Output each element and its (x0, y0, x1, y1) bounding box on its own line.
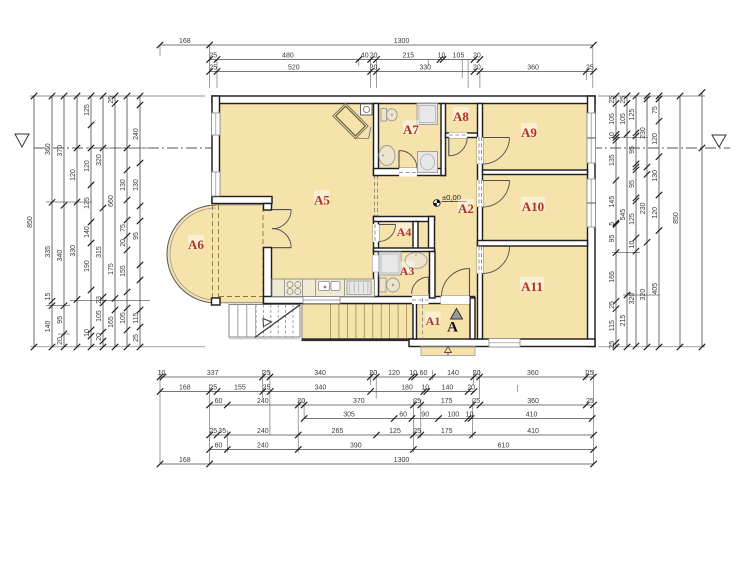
svg-text:25: 25 (263, 385, 271, 392)
svg-text:10: 10 (438, 53, 446, 60)
svg-text:135: 135 (609, 154, 616, 166)
svg-text:A11: A11 (521, 279, 543, 294)
svg-text:340: 340 (314, 370, 326, 377)
svg-text:105: 105 (453, 53, 465, 60)
svg-text:60: 60 (215, 398, 223, 405)
svg-text:660: 660 (108, 195, 115, 207)
svg-text:115: 115 (133, 312, 140, 323)
svg-text:165: 165 (609, 271, 616, 283)
svg-text:125: 125 (389, 428, 401, 435)
svg-text:20: 20 (370, 53, 378, 60)
svg-text:120: 120 (652, 133, 659, 145)
svg-text:125: 125 (629, 213, 636, 225)
svg-text:320: 320 (640, 289, 647, 301)
svg-text:155: 155 (120, 265, 127, 277)
svg-text:405: 405 (652, 283, 659, 295)
svg-text:95: 95 (609, 235, 616, 243)
svg-text:20: 20 (96, 333, 103, 341)
svg-text:25: 25 (209, 53, 217, 60)
svg-text:40: 40 (361, 53, 369, 60)
svg-text:25: 25 (609, 301, 616, 309)
svg-text:25: 25 (586, 65, 594, 72)
svg-text:20: 20 (120, 239, 127, 247)
svg-text:75: 75 (652, 106, 659, 114)
svg-text:410: 410 (527, 428, 539, 435)
svg-text:360: 360 (527, 65, 539, 72)
svg-text:168: 168 (179, 457, 191, 464)
svg-text:330: 330 (419, 65, 431, 72)
svg-text:140: 140 (84, 226, 91, 238)
svg-text:25: 25 (586, 370, 594, 377)
svg-text:60: 60 (215, 443, 223, 450)
svg-text:850: 850 (27, 216, 34, 228)
svg-text:5: 5 (609, 222, 616, 226)
svg-text:20: 20 (369, 370, 377, 377)
svg-text:95: 95 (133, 232, 140, 240)
svg-text:95: 95 (57, 316, 64, 324)
svg-text:240: 240 (257, 443, 269, 450)
svg-text:105: 105 (96, 310, 103, 322)
svg-text:190: 190 (84, 260, 91, 272)
svg-text:100: 100 (447, 412, 459, 419)
svg-text:330: 330 (70, 245, 77, 257)
svg-text:370: 370 (353, 398, 365, 405)
svg-text:25: 25 (620, 96, 627, 104)
svg-text:168: 168 (179, 385, 191, 392)
svg-text:A: A (447, 320, 458, 336)
svg-text:340: 340 (315, 385, 327, 392)
svg-text:390: 390 (350, 443, 362, 450)
svg-text:A8: A8 (453, 109, 469, 124)
svg-text:850: 850 (673, 212, 680, 224)
svg-text:105: 105 (120, 312, 127, 324)
svg-text:20: 20 (370, 65, 378, 72)
svg-text:165: 165 (108, 316, 115, 328)
svg-text:105: 105 (609, 113, 616, 125)
svg-text:25: 25 (413, 428, 421, 435)
svg-text:140: 140 (442, 385, 454, 392)
svg-text:340: 340 (57, 250, 64, 262)
svg-text:125: 125 (629, 109, 636, 121)
svg-text:95: 95 (629, 180, 636, 188)
svg-text:175: 175 (108, 263, 115, 275)
svg-text:240: 240 (257, 428, 269, 435)
svg-text:25: 25 (108, 96, 115, 104)
svg-text:60: 60 (399, 412, 407, 419)
svg-text:25: 25 (209, 65, 217, 72)
svg-text:75: 75 (120, 224, 127, 232)
svg-text:1300: 1300 (394, 38, 410, 45)
svg-text:215: 215 (402, 53, 414, 60)
svg-text:25: 25 (586, 398, 594, 405)
svg-text:120: 120 (70, 169, 77, 181)
svg-text:23: 23 (96, 296, 103, 304)
svg-text:10: 10 (629, 241, 636, 249)
svg-text:A7: A7 (403, 122, 419, 137)
svg-text:168: 168 (179, 38, 191, 45)
svg-text:175: 175 (441, 398, 453, 405)
svg-text:130: 130 (120, 179, 127, 191)
svg-text:20: 20 (473, 370, 481, 377)
svg-text:130: 130 (133, 179, 140, 191)
svg-text:A6: A6 (188, 237, 204, 252)
svg-text:95: 95 (629, 146, 636, 154)
svg-text:360: 360 (527, 398, 539, 405)
svg-text:360: 360 (45, 143, 52, 155)
svg-text:315: 315 (96, 246, 103, 258)
svg-text:410: 410 (526, 412, 538, 419)
svg-text:20: 20 (473, 53, 481, 60)
svg-text:A5: A5 (314, 193, 330, 208)
svg-text:370: 370 (57, 145, 64, 157)
svg-text:305: 305 (343, 412, 355, 419)
svg-text:20: 20 (297, 398, 305, 405)
svg-text:140: 140 (45, 320, 52, 332)
svg-text:125: 125 (84, 197, 91, 209)
svg-text:1300: 1300 (394, 457, 410, 464)
svg-text:A9: A9 (521, 125, 537, 140)
svg-text:25: 25 (209, 428, 217, 435)
svg-text:10: 10 (421, 385, 429, 392)
svg-text:35: 35 (218, 428, 226, 435)
svg-text:20: 20 (467, 385, 475, 392)
svg-text:545: 545 (620, 209, 627, 221)
svg-text:130: 130 (652, 170, 659, 182)
svg-text:25: 25 (262, 370, 270, 377)
svg-text:A1: A1 (426, 314, 441, 328)
svg-text:10: 10 (466, 412, 474, 419)
svg-text:A4: A4 (397, 225, 412, 239)
svg-text:115: 115 (609, 320, 616, 331)
svg-text:A2: A2 (458, 201, 474, 216)
svg-text:240: 240 (133, 128, 140, 140)
svg-text:360: 360 (527, 370, 539, 377)
svg-text:10: 10 (158, 370, 166, 377)
svg-text:120: 120 (652, 207, 659, 219)
svg-text:520: 520 (288, 65, 300, 72)
svg-text:230: 230 (640, 202, 647, 214)
svg-text:10: 10 (84, 329, 91, 337)
svg-text:120: 120 (388, 370, 400, 377)
svg-text:240: 240 (257, 398, 269, 405)
svg-text:120: 120 (84, 160, 91, 172)
svg-text:230: 230 (640, 127, 647, 139)
svg-text:175: 175 (441, 428, 453, 435)
svg-text:A3: A3 (400, 264, 415, 278)
svg-text:15: 15 (45, 293, 52, 301)
svg-text:25: 25 (609, 341, 616, 349)
svg-text:125: 125 (84, 104, 91, 116)
svg-text:337: 337 (207, 370, 219, 377)
svg-text:335: 335 (45, 246, 52, 258)
svg-text:25: 25 (472, 398, 480, 405)
svg-text:90: 90 (421, 412, 429, 419)
svg-text:320: 320 (96, 154, 103, 166)
svg-text:105: 105 (620, 113, 627, 125)
svg-text:480: 480 (282, 53, 294, 60)
svg-text:25: 25 (133, 334, 140, 342)
svg-text:155: 155 (234, 385, 246, 392)
svg-text:215: 215 (620, 315, 627, 327)
svg-text:265: 265 (332, 428, 344, 435)
svg-text:180: 180 (401, 385, 413, 392)
svg-text:20: 20 (473, 65, 481, 72)
svg-text:25: 25 (209, 385, 217, 392)
svg-text:25: 25 (413, 398, 421, 405)
svg-text:10: 10 (409, 370, 417, 377)
svg-text:20: 20 (57, 337, 64, 345)
svg-text:610: 610 (498, 443, 510, 450)
svg-text:60: 60 (420, 370, 428, 377)
svg-text:140: 140 (447, 370, 459, 377)
svg-text:10: 10 (609, 132, 616, 140)
svg-text:320: 320 (629, 293, 636, 305)
svg-text:A10: A10 (522, 199, 544, 214)
svg-text:25: 25 (609, 96, 616, 104)
svg-text:145: 145 (609, 196, 616, 208)
